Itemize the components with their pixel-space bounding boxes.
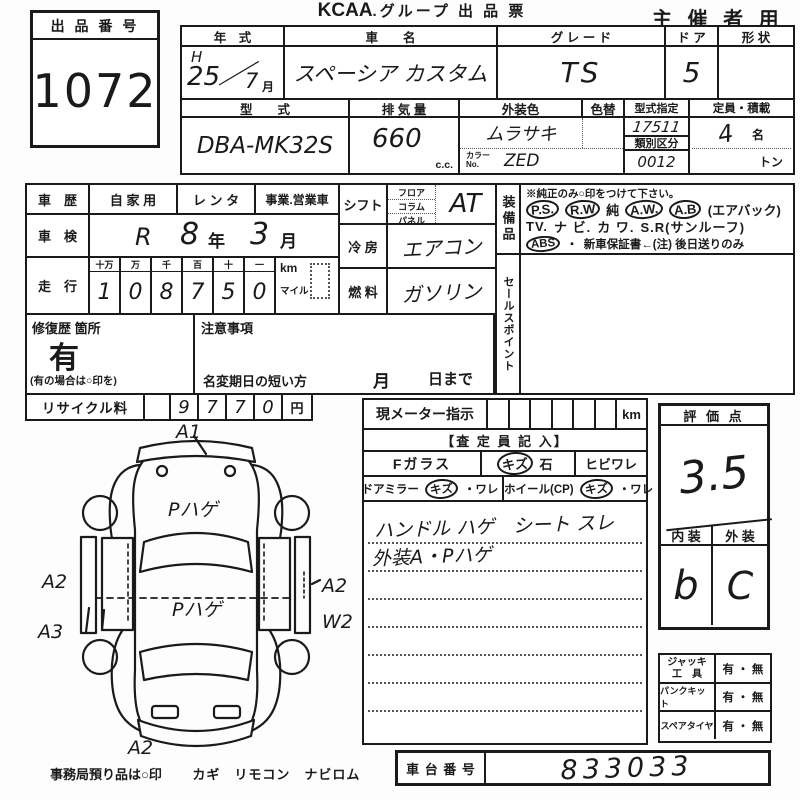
office-note-items: カギ リモコン ナビロム xyxy=(192,767,360,782)
recycle-digit-blank xyxy=(145,395,171,419)
fuel-label: 燃 料 xyxy=(340,269,388,313)
assessor-note-line2: 外装A・Pハゲ xyxy=(372,540,492,571)
option-text: TV. xyxy=(526,219,548,234)
interior-grade: b xyxy=(661,546,713,625)
repair-caution-table: 修復歴 箇所 有 (有の場合は○印を) 注意事項 名変期日の短い方 月 日まで xyxy=(25,315,495,395)
shift-type-floor: フロア xyxy=(388,186,435,200)
diagram-note-roof: Pハゲ xyxy=(172,599,224,621)
circled-option: キズ xyxy=(424,477,458,499)
year-number: 25 xyxy=(187,62,220,92)
color-no-value: ZED xyxy=(496,149,623,173)
option-text: 石 xyxy=(540,454,553,473)
tools-box: ジャッキ 工 具 有 ・ 無 パンクキット 有 ・ 無 スペアタイヤ 有 ・ 無 xyxy=(658,653,772,743)
assessor-notes-area: ハンドル ハゲ シート スレ 外装A・Pハゲ xyxy=(364,502,646,743)
capacity-divider xyxy=(692,148,791,149)
name-change-day: 日まで xyxy=(428,368,473,389)
circled-option: ABS xyxy=(525,234,560,252)
option-text: ・ワレ xyxy=(619,481,654,497)
lot-number-label: 出 品 番 号 xyxy=(33,13,157,40)
color-no-label: カラー No. xyxy=(460,149,496,173)
recycle-fee-label: リサイクル料 xyxy=(27,395,145,419)
inspection-year-suffix: 年 xyxy=(208,227,225,252)
vehicle-table-lower: 型 式 DBA-MK32S 排 気 量 660 c.c. 外装色 色替 ムラサキ… xyxy=(180,100,795,175)
inspection-value: R 8 年 3 月 xyxy=(90,215,338,256)
door-value: 5 xyxy=(666,47,719,98)
meter-digit-cell xyxy=(510,400,532,428)
mileage-digit: 7 xyxy=(183,272,212,313)
door-mirror-row: ドアミラーキズ・ワレ xyxy=(364,477,504,500)
usage-rental: レ ン タ xyxy=(178,185,256,213)
type-designation-label: 型式指定 xyxy=(625,100,688,118)
grade-label: グ レ ー ド xyxy=(498,27,666,45)
office-note-label: 事務局預り品は○印 xyxy=(50,767,162,782)
classification-label: 類別区分 xyxy=(625,135,688,151)
diagram-note-rear: A2 xyxy=(126,737,153,759)
exterior-label: 外 装 xyxy=(713,526,767,544)
recycle-digit: 7 xyxy=(199,395,227,419)
inspection-label: 車 検 xyxy=(27,215,90,256)
mileage-header: 十 xyxy=(214,258,243,272)
year-month: 7 xyxy=(245,69,258,93)
car-name-label: 車 名 xyxy=(285,27,498,45)
mileage-label: 走 行 xyxy=(27,258,90,313)
sheet-title-text: .グループ 出 品 票 xyxy=(373,3,527,20)
name-change-month: 月 xyxy=(373,367,390,392)
front-glass-crack-option: ヒビワレ xyxy=(576,452,646,475)
spare-tire-value: 有 ・ 無 xyxy=(716,712,770,739)
front-glass-scratch-option: キズ石 xyxy=(482,452,576,475)
meter-digit-cell xyxy=(596,400,618,428)
mileage-header: 千 xyxy=(152,258,181,272)
ton-label: トン xyxy=(759,153,783,170)
meter-digit-cell xyxy=(553,400,575,428)
shape-value xyxy=(719,47,793,98)
car-name-value: スペーシア カスタム xyxy=(285,47,498,98)
puncture-kit-label: パンクキット xyxy=(660,684,716,710)
model-code-value: DBA-MK32S xyxy=(182,118,348,173)
sheet-title: KCAA.グループ 出 品 票 xyxy=(262,0,582,22)
shift-value: AT xyxy=(436,185,495,223)
mileage-digit: 0 xyxy=(245,272,274,313)
recycle-digit: 9 xyxy=(171,395,199,419)
diagram-note-hood: Pハゲ xyxy=(168,499,220,521)
chassis-number-box: 車 台 番 号 833033 xyxy=(395,750,771,786)
lot-number-box: 出 品 番 号 1072 xyxy=(30,10,160,148)
mileage-digit: 5 xyxy=(214,272,243,313)
shape-label: 形 状 xyxy=(719,27,793,45)
option-text: ・ワレ xyxy=(464,481,499,497)
recycle-fee-row: リサイクル料 9 7 7 0 円 xyxy=(25,395,313,421)
usage-private: 自 家 用 xyxy=(90,185,178,213)
history-label: 車 歴 xyxy=(27,185,90,213)
diagram-note-left-mid: A2 xyxy=(40,571,67,593)
mile-unit-label: マイル xyxy=(280,283,310,297)
diagram-note-right-mid: A2 xyxy=(320,575,347,597)
ac-label: 冷 房 xyxy=(340,225,388,267)
diagram-note-right-low: W2 xyxy=(322,611,353,633)
capacity-label: 定員・積載 xyxy=(690,100,793,118)
mileage-digit: 1 xyxy=(90,272,119,313)
repair-history-note: (有の場合は○印を) xyxy=(30,373,117,388)
displacement-number: 660 xyxy=(372,124,422,154)
mileage-digit: 8 xyxy=(152,272,181,313)
mileage-header: 百 xyxy=(183,258,212,272)
equipment-box: 装備品 ※純正のみ○印をつけて下さい。 P.S.R.W純A.W.A.B(エアバッ… xyxy=(495,183,795,255)
diagram-note-front: A1 xyxy=(174,421,201,443)
usage-business: 事業.営業車 xyxy=(256,185,338,213)
mileage-digit: 0 xyxy=(121,272,150,313)
chassis-number-value: 833033 xyxy=(486,748,769,788)
color-change-value xyxy=(583,118,623,148)
sheet-title-logo: KCAA xyxy=(318,0,373,21)
mileage-header: 十万 xyxy=(90,258,119,272)
meter-digit-cell xyxy=(488,400,510,428)
repair-history-value: 有 xyxy=(49,333,79,377)
ac-value: エアコン xyxy=(387,222,496,270)
history-table: 車 歴 自 家 用 レ ン タ 事業.営業車 車 検 R 8 年 3 月 走 行… xyxy=(25,183,340,315)
sales-point-box: セールスポイント xyxy=(495,255,795,395)
option-text: ・ xyxy=(566,236,578,252)
color-change-label: 色替 xyxy=(583,100,623,116)
door-label: ド ア xyxy=(666,27,719,45)
displacement-value: 660 c.c. xyxy=(350,118,458,173)
lot-number-value: 1072 xyxy=(33,40,157,142)
option-text: 新車保証書←(注) 後日送りのみ xyxy=(584,236,744,252)
circled-option: R.W xyxy=(564,199,601,220)
chassis-number-label: 車 台 番 号 xyxy=(398,753,486,783)
exterior-grade: C xyxy=(713,546,767,625)
option-text: ナ ビ. xyxy=(554,217,591,236)
vehicle-damage-diagram: A1 Pハゲ Pハゲ A2 A3 A2 W2 A2 xyxy=(36,420,356,765)
option-text: カ ワ. xyxy=(597,217,634,236)
body-color-label: 外装色 xyxy=(460,100,583,116)
model-code-label: 型 式 xyxy=(182,100,348,118)
type-designation-value: 17511 xyxy=(624,118,689,135)
name-change-label: 名変期日の短い方 xyxy=(203,371,307,390)
circled-option: キズ xyxy=(579,477,613,499)
meter-unit-label: km xyxy=(617,400,646,428)
mileage-header: 万 xyxy=(121,258,150,272)
year-month-suffix: 月 xyxy=(262,78,274,95)
vehicle-table-upper: 年 式 車 名 グ レ ー ド ド ア 形 状 H 25 ／ 7 月 スペーシア… xyxy=(180,25,795,100)
shift-type-column: コラム xyxy=(388,200,435,214)
year-value: H 25 ／ 7 月 xyxy=(182,47,285,98)
meter-digit-cell xyxy=(574,400,596,428)
km-unit-label: km xyxy=(280,261,310,275)
rating-box: 評 価 点 3.5 内 装 外 装 b C xyxy=(658,403,770,630)
assessor-section-title: 【査 定 員 記 入】 xyxy=(364,430,646,452)
assessor-box: 現メーター指示 km 【査 定 員 記 入】 Fガラス キズ石 ヒビワレ ドアミ… xyxy=(362,398,648,745)
equipment-line2: TV.ナ ビ.カ ワ.S.R(サンルーフ) xyxy=(526,218,788,235)
caution-label: 注意事項 xyxy=(201,318,253,337)
office-items-note: 事務局預り品は○印 カギ リモコン ナビロム xyxy=(50,764,360,784)
inspection-era: R xyxy=(135,223,152,251)
fuel-value: ガソリン xyxy=(387,266,496,316)
inspection-year: 8 xyxy=(180,217,199,252)
equipment-line3: ABS・新車保証書←(注) 後日送りのみ xyxy=(526,235,788,252)
inspection-month-suffix: 月 xyxy=(280,227,297,252)
jack-tools-label: ジャッキ 工 具 xyxy=(660,655,716,682)
spare-tire-label: スペアタイヤ xyxy=(660,712,716,739)
unit-check-box xyxy=(310,263,330,299)
diagram-note-left-low: A3 xyxy=(36,621,63,643)
spec-column: シフト フロア コラム パネル AT 冷 房 エアコン 燃 料 ガソリン xyxy=(340,183,495,315)
capacity-value-area: 4 名 トン xyxy=(690,118,793,173)
recycle-unit: 円 xyxy=(283,395,311,419)
sales-point-strip-label: セールスポイント xyxy=(497,255,521,393)
option-text: ドアミラー xyxy=(362,481,419,497)
body-color-value: ムラサキ xyxy=(460,118,583,148)
option-text: ホイール(CP) xyxy=(504,481,574,497)
shift-label: シフト xyxy=(340,185,388,223)
option-text: S.R(サンルーフ) xyxy=(641,217,746,236)
sales-point-area xyxy=(521,255,793,393)
front-glass-label: Fガラス xyxy=(364,452,482,475)
recycle-digit: 0 xyxy=(255,395,283,419)
equipment-line1: P.S.R.W純A.W.A.B(エアバック) xyxy=(526,201,788,218)
equipment-note: ※純正のみ○印をつけて下さい。 xyxy=(526,186,788,201)
classification-value: 0012 xyxy=(625,151,688,173)
meter-digit-cell xyxy=(531,400,553,428)
puncture-kit-value: 有 ・ 無 xyxy=(716,684,770,710)
year-label: 年 式 xyxy=(182,27,285,45)
mileage-header: 一 xyxy=(245,258,274,272)
displacement-unit: c.c. xyxy=(435,159,453,171)
displacement-label: 排 気 量 xyxy=(350,100,458,118)
rating-score: 3.5 xyxy=(656,421,772,532)
meter-reading-label: 現メーター指示 xyxy=(364,400,488,428)
capacity-value: 4 xyxy=(716,119,736,149)
inspection-month: 3 xyxy=(250,217,269,252)
recycle-digit: 7 xyxy=(227,395,255,419)
jack-tools-value: 有 ・ 無 xyxy=(716,655,770,682)
wheel-row: ホイール(CP)キズ・ワレ xyxy=(504,477,659,500)
circled-option: キズ xyxy=(497,451,535,476)
assessor-note-line1: ハンドル ハゲ シート スレ xyxy=(374,508,615,543)
equipment-strip-label: 装備品 xyxy=(497,185,521,253)
auction-sheet: 出 品 番 号 1072 KCAA.グループ 出 品 票 主 催 者 用 年 式… xyxy=(0,0,800,800)
grade-value: TS xyxy=(498,47,666,98)
capacity-unit: 名 xyxy=(752,126,764,143)
